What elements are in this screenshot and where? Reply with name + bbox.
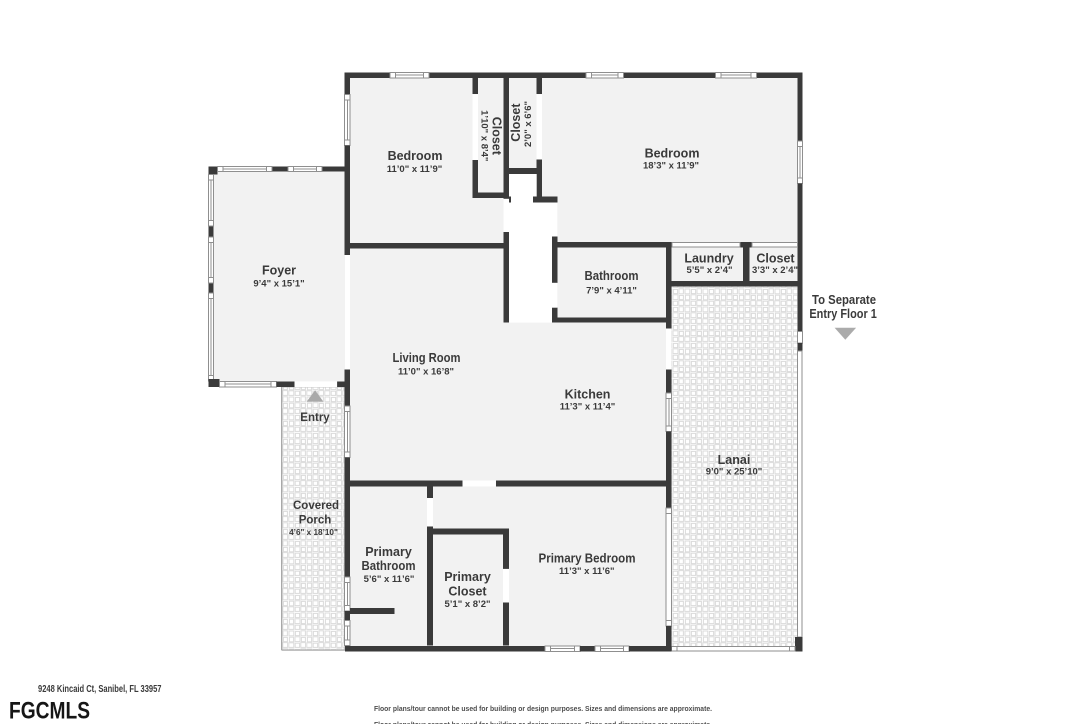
svg-text:9248 Kincaid Ct, Sanibel, FL 3: 9248 Kincaid Ct, Sanibel, FL 33957	[38, 683, 162, 695]
svg-text:Closet: Closet	[489, 117, 503, 156]
svg-text:Porch: Porch	[299, 515, 332, 527]
svg-text:Primary: Primary	[365, 545, 412, 559]
svg-text:Entry Floor 1: Entry Floor 1	[809, 307, 877, 321]
svg-text:Bathroom: Bathroom	[362, 559, 416, 573]
svg-text:9’0" x 25’10": 9’0" x 25’10"	[706, 467, 763, 478]
svg-text:Bathroom: Bathroom	[585, 269, 639, 283]
svg-text:Closet: Closet	[448, 585, 487, 599]
svg-text:5’6" x 11’6": 5’6" x 11’6"	[364, 574, 415, 585]
svg-text:9’4" x 15’1": 9’4" x 15’1"	[253, 279, 304, 290]
svg-text:11’0" x 11’9": 11’0" x 11’9"	[387, 164, 443, 175]
svg-text:Covered: Covered	[293, 500, 339, 512]
svg-text:3’3" x 2’4": 3’3" x 2’4"	[752, 265, 798, 276]
svg-text:Primary: Primary	[444, 570, 491, 584]
svg-text:5’5" x 2’4": 5’5" x 2’4"	[687, 265, 733, 276]
svg-text:Living Room: Living Room	[393, 351, 461, 365]
svg-text:11’0" x 16’8": 11’0" x 16’8"	[398, 367, 454, 378]
svg-text:Floor plans/tour cannot be use: Floor plans/tour cannot be used for buil…	[374, 706, 712, 713]
svg-text:5’1" x 8’2": 5’1" x 8’2"	[445, 599, 491, 610]
svg-text:1’10" x 8’4": 1’10" x 8’4"	[479, 110, 490, 161]
svg-text:18’3" x 11’9": 18’3" x 11’9"	[643, 161, 699, 172]
svg-text:11’3" x 11’4": 11’3" x 11’4"	[560, 402, 616, 413]
svg-text:Lanai: Lanai	[718, 453, 751, 467]
svg-text:Entry: Entry	[300, 412, 330, 424]
svg-text:Foyer: Foyer	[262, 264, 296, 278]
svg-text:2’0" x 6’6": 2’0" x 6’6"	[523, 101, 534, 147]
svg-text:Bedroom: Bedroom	[388, 149, 443, 163]
svg-text:Closet: Closet	[756, 252, 795, 266]
svg-text:To Separate: To Separate	[812, 293, 876, 307]
svg-text:Kitchen: Kitchen	[565, 388, 611, 402]
svg-text:FGCMLS: FGCMLS	[9, 698, 90, 724]
svg-text:Primary Bedroom: Primary Bedroom	[539, 552, 636, 566]
svg-text:4’6" x 18’10": 4’6" x 18’10"	[289, 528, 338, 537]
svg-text:Closet: Closet	[509, 103, 523, 142]
svg-text:11’3" x 11’6": 11’3" x 11’6"	[559, 566, 615, 577]
svg-text:Laundry: Laundry	[684, 252, 733, 266]
svg-text:Bedroom: Bedroom	[645, 147, 700, 161]
svg-text:7’9" x 4’11": 7’9" x 4’11"	[586, 286, 637, 297]
